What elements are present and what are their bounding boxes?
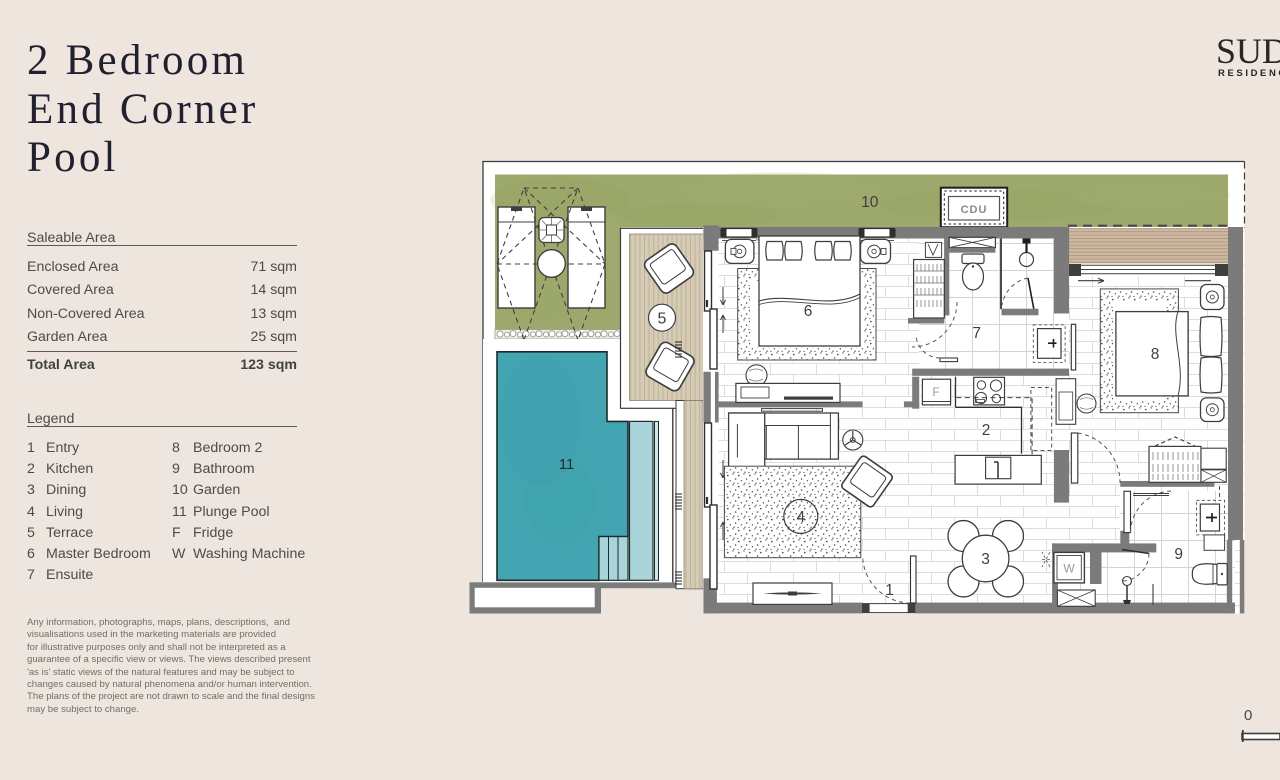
svg-text:W: W bbox=[1063, 562, 1075, 576]
svg-text:11: 11 bbox=[559, 456, 575, 473]
svg-text:5: 5 bbox=[658, 311, 667, 328]
svg-text:2: 2 bbox=[982, 422, 991, 439]
svg-text:F: F bbox=[932, 385, 939, 399]
svg-text:1: 1 bbox=[885, 582, 894, 599]
svg-text:7: 7 bbox=[972, 325, 981, 342]
svg-text:CDU: CDU bbox=[961, 204, 988, 216]
svg-text:10: 10 bbox=[861, 194, 879, 211]
svg-text:4: 4 bbox=[796, 509, 805, 526]
svg-text:3: 3 bbox=[981, 551, 990, 568]
svg-text:9: 9 bbox=[1174, 546, 1183, 563]
svg-text:6: 6 bbox=[804, 303, 813, 320]
svg-text:8: 8 bbox=[1151, 346, 1160, 363]
